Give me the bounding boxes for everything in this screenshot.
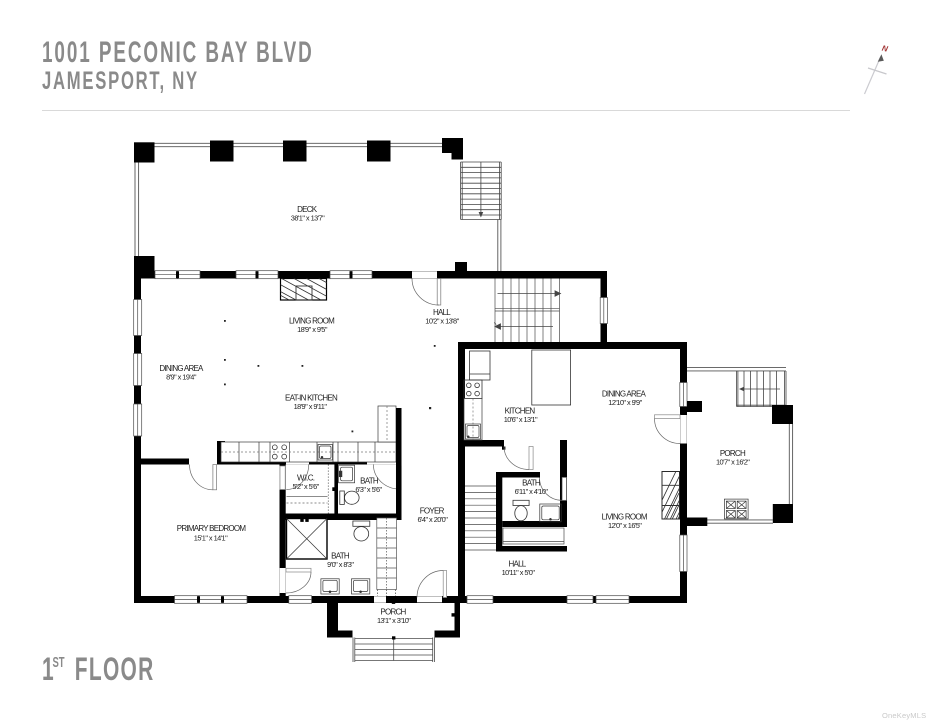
svg-text:10'11" x 5'0": 10'11" x 5'0"	[502, 568, 536, 577]
svg-text:8'9" x 19'4": 8'9" x 19'4"	[166, 372, 197, 381]
svg-text:PRIMARY BEDROOM: PRIMARY BEDROOM	[177, 524, 247, 533]
svg-text:5'2" x 5'6": 5'2" x 5'6"	[292, 482, 319, 491]
svg-text:18'9" x 9'11": 18'9" x 9'11"	[294, 402, 328, 411]
svg-text:18'9" x 9'5": 18'9" x 9'5"	[297, 325, 328, 334]
svg-text:9'0" x 8'3": 9'0" x 8'3"	[327, 560, 354, 569]
svg-text:12'0" x 16'5": 12'0" x 16'5"	[608, 521, 642, 530]
svg-text:12'10" x 9'9": 12'10" x 9'9"	[608, 398, 642, 407]
svg-text:10'2" x 13'8": 10'2" x 13'8"	[425, 316, 459, 325]
svg-text:1001 PECONIC BAY BLVD: 1001 PECONIC BAY BLVD	[42, 37, 314, 69]
svg-text:6'4" x 20'0": 6'4" x 20'0"	[417, 515, 448, 524]
svg-text:FLOOR: FLOOR	[75, 652, 155, 687]
svg-text:6'3" x 5'6": 6'3" x 5'6"	[355, 485, 382, 494]
svg-text:JAMESPORT, NY: JAMESPORT, NY	[42, 68, 199, 95]
svg-text:38'1" x 13'7": 38'1" x 13'7"	[291, 214, 325, 223]
svg-text:OneKeyMLS: OneKeyMLS	[882, 711, 926, 720]
svg-text:13'1" x 3'10": 13'1" x 3'10"	[377, 616, 411, 625]
svg-text:10'7" x 16'2": 10'7" x 16'2"	[716, 457, 750, 466]
svg-text:ST: ST	[52, 654, 65, 671]
svg-text:6'11" x 4'10": 6'11" x 4'10"	[515, 487, 549, 496]
svg-text:10'6" x 13'1": 10'6" x 13'1"	[504, 415, 538, 424]
svg-text:15'1" x 14'1": 15'1" x 14'1"	[194, 534, 228, 543]
